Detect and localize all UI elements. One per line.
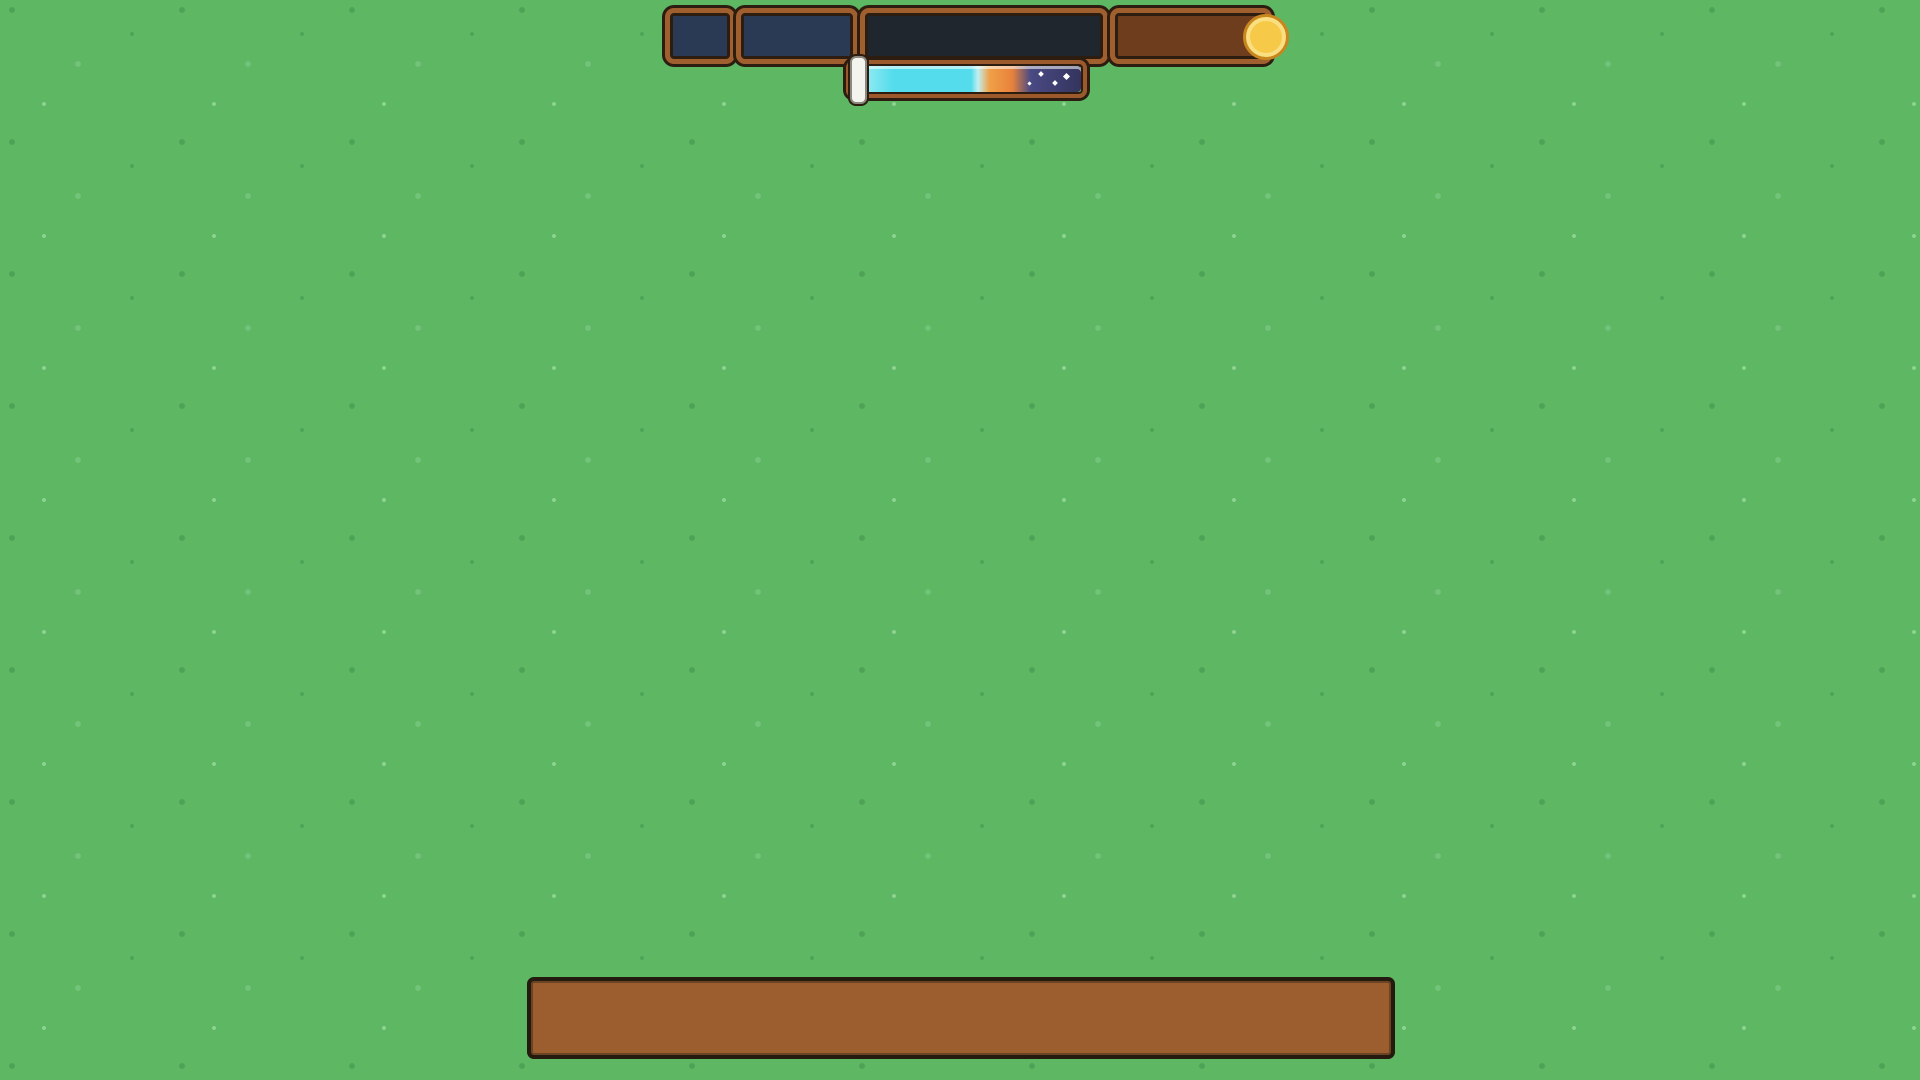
game-viewport xyxy=(0,0,1920,1080)
coin-icon xyxy=(1243,14,1289,60)
time-marker xyxy=(850,56,867,104)
moon-icon xyxy=(1076,56,1110,100)
date-panel xyxy=(860,8,1108,64)
hotbar xyxy=(527,977,1395,1059)
sun-icon xyxy=(806,52,852,98)
sun-icon xyxy=(683,19,717,53)
day-progress-bar xyxy=(846,60,1087,98)
day-progress-fill xyxy=(852,66,1081,92)
money-panel xyxy=(1110,8,1272,64)
scene-root xyxy=(0,0,1920,1080)
weather-panel xyxy=(665,8,735,64)
